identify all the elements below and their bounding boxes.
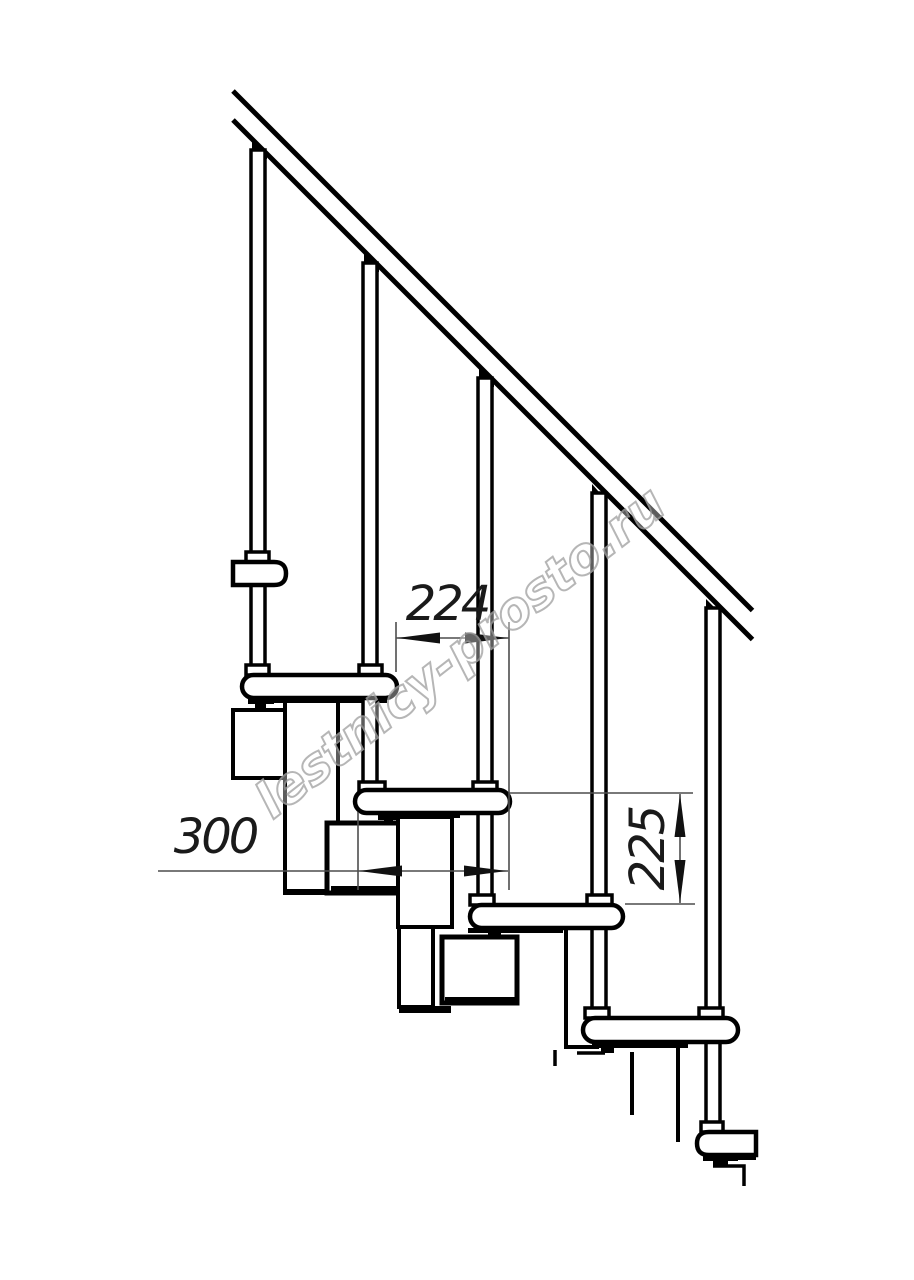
support-block-2	[442, 937, 517, 1003]
dimension-run-label: 224	[406, 576, 489, 632]
dimension-depth-label: 300	[174, 809, 258, 865]
tread-5-cut	[697, 1132, 756, 1155]
support-box-left	[233, 710, 290, 778]
tread-1	[242, 675, 397, 698]
support-riser-2	[398, 817, 452, 927]
tread-3	[470, 905, 623, 928]
support-block-1	[327, 823, 405, 893]
tread-0-cut	[233, 562, 286, 585]
baluster-5	[706, 608, 720, 1132]
tread-4	[583, 1018, 738, 1042]
dimension-rise-label: 225	[620, 807, 676, 890]
staircase-drawing-svg: 224 300 225	[0, 0, 914, 1280]
support-riser-2b	[399, 927, 433, 1007]
baluster-1	[251, 150, 265, 675]
tread-2	[355, 790, 510, 813]
baluster-4	[592, 493, 606, 1018]
baluster-2	[363, 263, 377, 792]
staircase-technical-drawing-page: 224 300 225 lestnicy-prosto.ru	[0, 0, 914, 1280]
